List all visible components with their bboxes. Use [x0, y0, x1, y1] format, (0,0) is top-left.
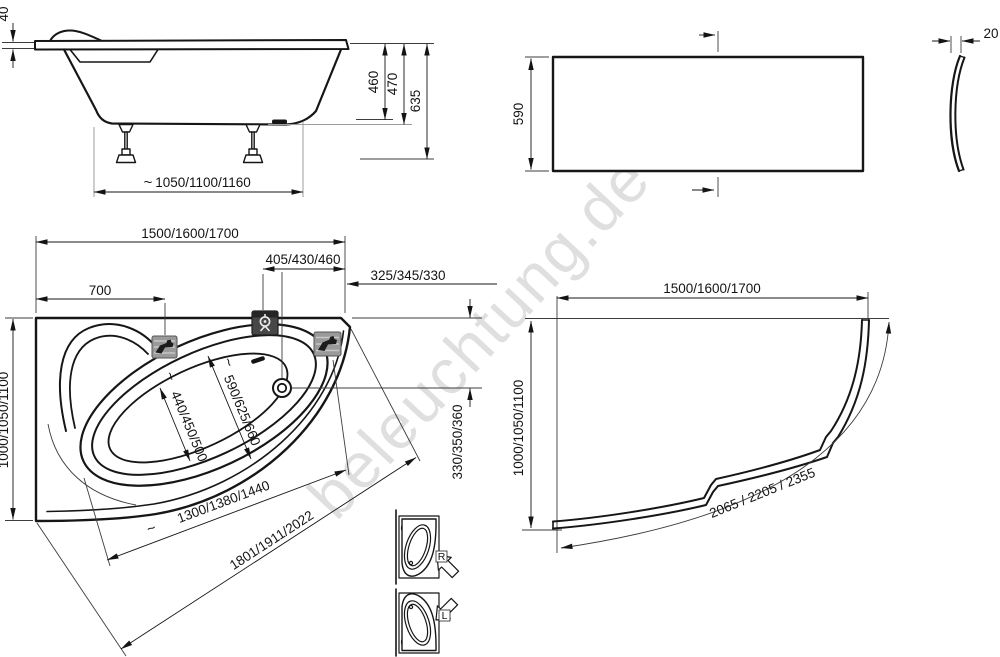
dim-rim-height: 40 [0, 6, 13, 68]
faucet-icon-right [314, 332, 341, 356]
svg-text:700: 700 [89, 283, 112, 298]
dim-panel-height: 590 [511, 59, 531, 170]
svg-text:330/350/360: 330/350/360 [450, 404, 465, 479]
svg-text:325/345/330: 325/345/330 [370, 268, 445, 283]
headrest-profile [50, 31, 101, 42]
variant-right-thumbnail: R [396, 510, 459, 584]
svg-text:~: ~ [144, 519, 158, 538]
corner-panel-view: 1500/1600/1700 1000/1050/1100 2065 / 220… [511, 281, 889, 553]
dim-corner-offset: 325/345/330 [347, 268, 497, 284]
svg-text:2065 / 2205 / 2355: 2065 / 2205 / 2355 [707, 465, 817, 521]
svg-text:40: 40 [0, 6, 11, 21]
svg-text:~: ~ [144, 174, 153, 191]
svg-text:1801/1911/2022: 1801/1911/2022 [227, 508, 316, 573]
svg-text:635: 635 [408, 90, 423, 113]
svg-text:1050/1100/1160: 1050/1100/1160 [155, 175, 251, 190]
svg-text:L: L [442, 610, 448, 622]
svg-text:405/430/460: 405/430/460 [265, 252, 340, 267]
svg-text:1500/1600/1700: 1500/1600/1700 [141, 226, 239, 241]
dim-corner-panel-length: 1500/1600/1700 [557, 281, 868, 298]
svg-text:R: R [438, 551, 446, 563]
svg-text:590: 590 [511, 103, 526, 126]
svg-text:1000/1050/1100: 1000/1050/1100 [0, 372, 11, 469]
dim-feet-span: ~ 1050/1100/1160 [94, 174, 303, 192]
drain-outer [273, 379, 291, 397]
side-view: 40 460 470 635 ~ 1050/1100/1160 [0, 6, 434, 197]
orientation-legend: R L [396, 510, 459, 656]
tub-rim-profile [35, 40, 349, 50]
adjustable-foot-right [244, 125, 263, 163]
svg-text:470: 470 [385, 73, 400, 96]
front-panel-view: 590 20 [511, 26, 999, 197]
svg-text:1000/1050/1100: 1000/1050/1100 [511, 380, 526, 477]
drain-outlet [272, 120, 287, 125]
tub-body-profile [64, 50, 341, 125]
dim-inner-depth: 460 [366, 44, 385, 120]
svg-text:1500/1600/1700: 1500/1600/1700 [663, 281, 761, 296]
dim-shell-height: 470 [385, 44, 404, 125]
dim-top-length: 1500/1600/1700 [36, 226, 345, 313]
faucet-icon-left [152, 336, 177, 358]
corner-panel-strip [553, 320, 869, 529]
dim-mixer-offset: 405/430/460 [263, 252, 345, 310]
mixer-icon [252, 311, 278, 335]
svg-text:460: 460 [366, 71, 381, 94]
dim-panel-thickness: 20 [932, 26, 999, 53]
adjustable-foot-left [117, 125, 136, 163]
variant-left-thumbnail: L [396, 589, 458, 656]
svg-text:20: 20 [983, 26, 998, 41]
dim-top-width: 1000/1050/1100 [0, 318, 33, 521]
dim-total-height: 635 [408, 44, 427, 159]
panel-cross-section [950, 56, 964, 171]
technical-drawing: beleuchtung.de [0, 0, 1000, 657]
basin-inner-edge [70, 50, 158, 63]
front-panel-face [553, 57, 863, 171]
